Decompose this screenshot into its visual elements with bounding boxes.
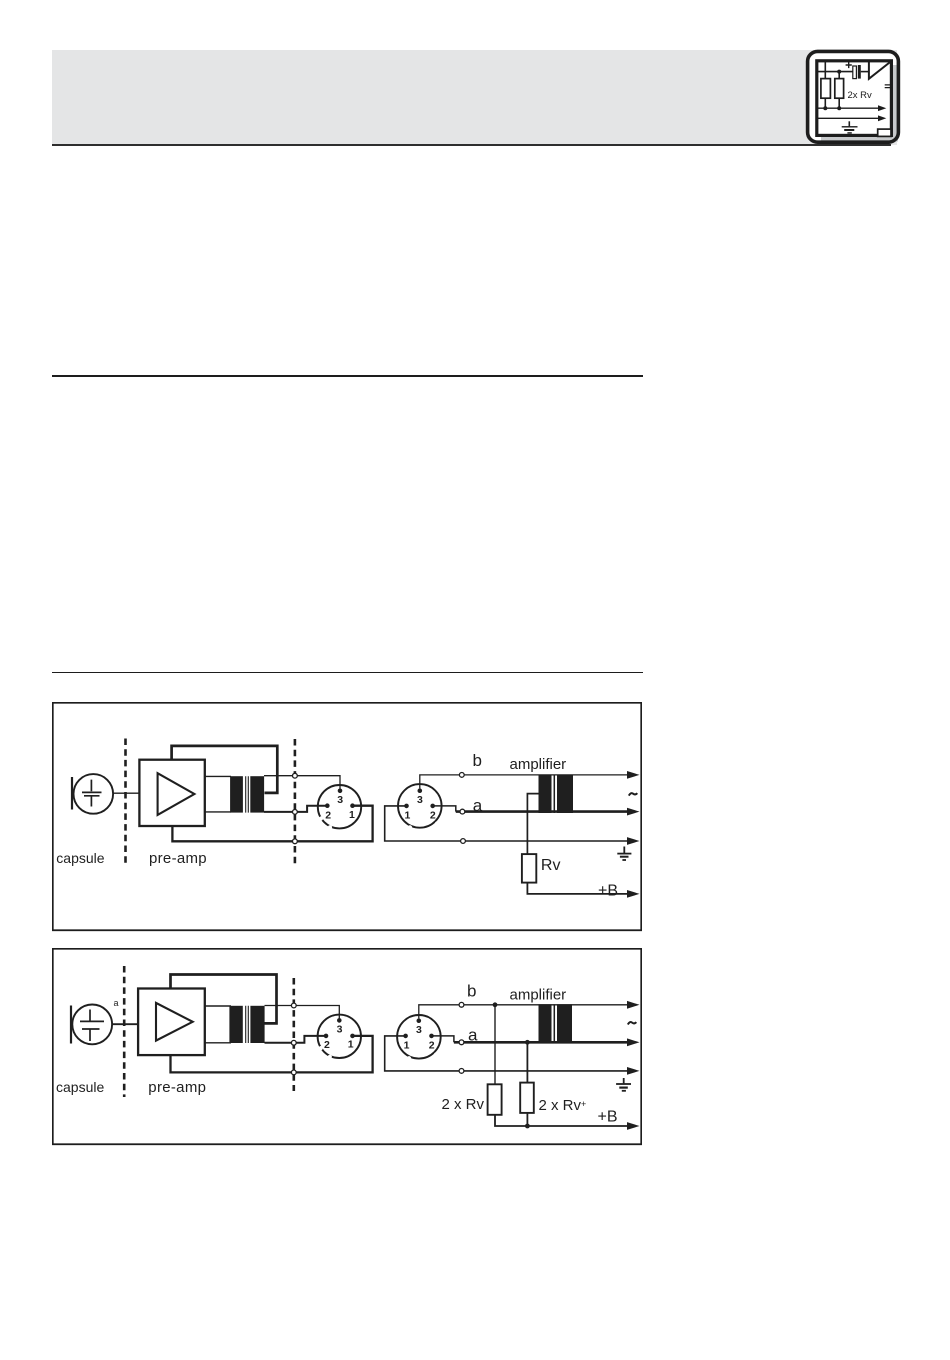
svg-text:a: a bbox=[114, 998, 119, 1008]
svg-text:1: 1 bbox=[404, 1039, 410, 1051]
svg-text:2: 2 bbox=[429, 1039, 435, 1051]
svg-text:pre-amp: pre-amp bbox=[148, 1079, 206, 1096]
svg-text:+B: +B bbox=[598, 1109, 618, 1126]
svg-text:3: 3 bbox=[337, 794, 343, 806]
svg-text:3: 3 bbox=[416, 1024, 422, 1036]
svg-text:amplifier: amplifier bbox=[510, 756, 567, 773]
svg-text:+B: +B bbox=[598, 883, 618, 900]
svg-text:a: a bbox=[473, 796, 483, 815]
svg-text:1: 1 bbox=[405, 809, 411, 821]
svg-text:1: 1 bbox=[348, 1039, 354, 1051]
svg-text:2: 2 bbox=[325, 810, 331, 822]
svg-text:1: 1 bbox=[349, 809, 355, 821]
svg-text:pre-amp: pre-amp bbox=[149, 850, 207, 867]
svg-text:capsule: capsule bbox=[56, 1079, 104, 1095]
svg-text:amplifier: amplifier bbox=[510, 987, 567, 1004]
svg-text:2: 2 bbox=[324, 1039, 330, 1051]
svg-text:+: + bbox=[581, 1099, 586, 1109]
svg-text:Rv: Rv bbox=[541, 857, 561, 874]
svg-text:capsule: capsule bbox=[56, 850, 104, 866]
svg-text:2 x Rv: 2 x Rv bbox=[442, 1096, 485, 1113]
svg-text:b: b bbox=[467, 982, 476, 1001]
svg-text:3: 3 bbox=[337, 1023, 343, 1035]
svg-text:2 x Rv: 2 x Rv bbox=[539, 1097, 582, 1114]
svg-text:a: a bbox=[468, 1026, 478, 1045]
svg-text:b: b bbox=[473, 751, 482, 770]
svg-text:2: 2 bbox=[430, 809, 436, 821]
svg-text:2x Rv: 2x Rv bbox=[848, 90, 873, 101]
svg-text:3: 3 bbox=[417, 794, 423, 806]
